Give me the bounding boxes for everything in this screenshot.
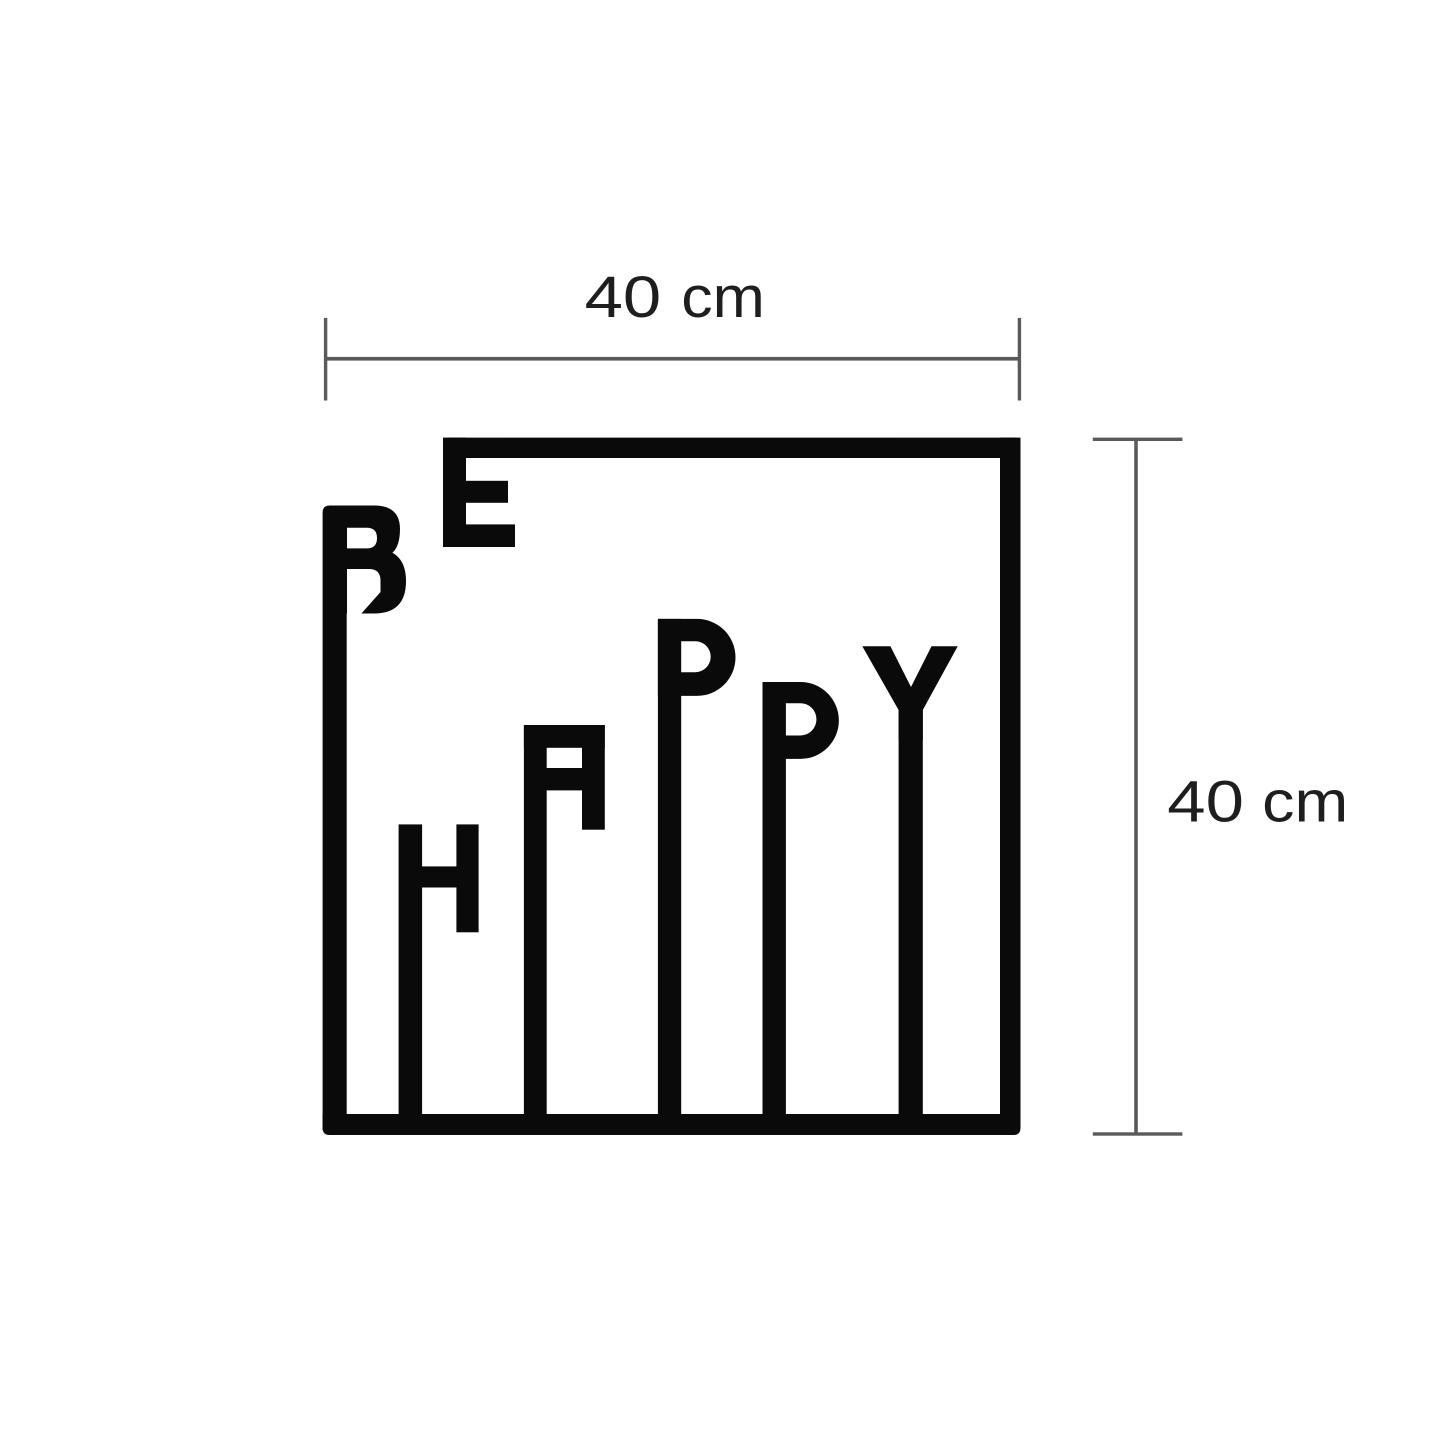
svg-text:40: 40 xyxy=(585,265,662,330)
svg-text:40: 40 xyxy=(1167,770,1244,835)
svg-text:cm: cm xyxy=(681,265,765,330)
svg-text:cm: cm xyxy=(1262,770,1348,835)
